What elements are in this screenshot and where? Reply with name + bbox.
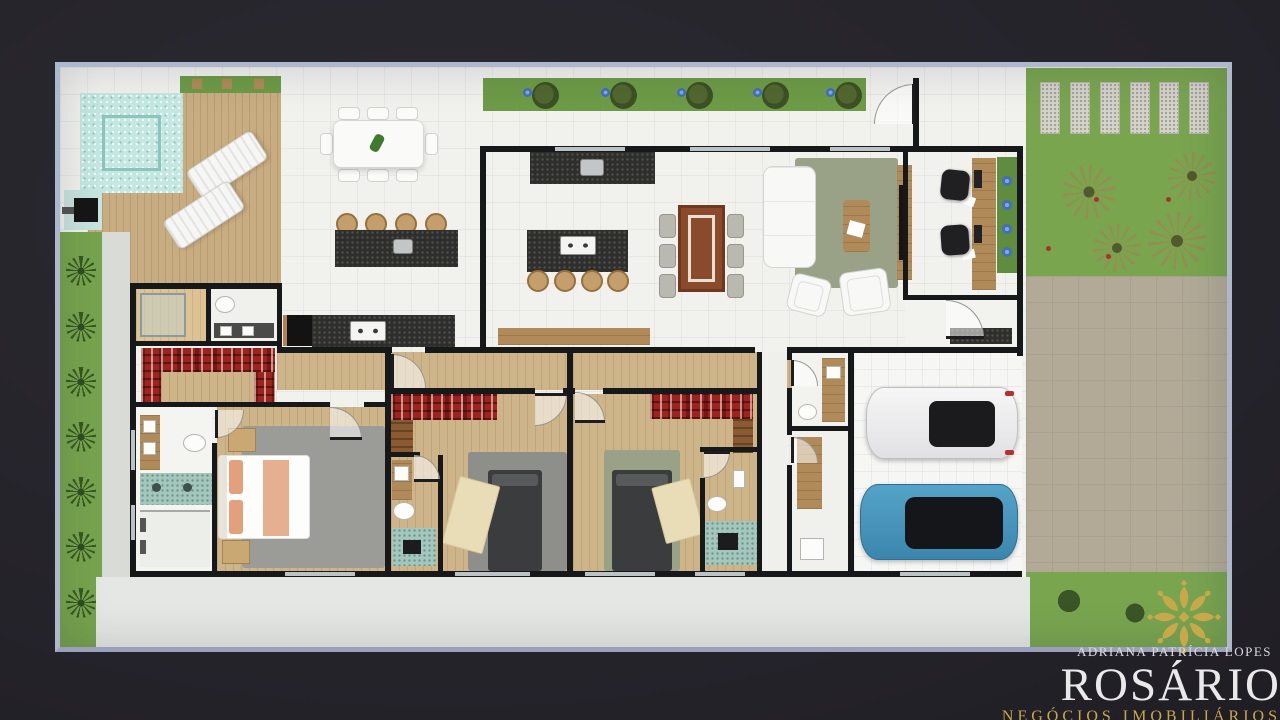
closet-floor (161, 370, 256, 406)
paver (1130, 82, 1150, 134)
paver (1100, 82, 1120, 134)
wall (212, 443, 217, 571)
bath2-door (414, 455, 440, 481)
kitchen-sink (580, 159, 604, 176)
wall (787, 465, 792, 571)
blue-flower (1002, 176, 1012, 186)
driveway (1026, 276, 1227, 572)
sofa (763, 166, 816, 268)
agave-plant (66, 367, 96, 397)
paver (1159, 82, 1179, 134)
wall (567, 352, 573, 571)
red-flower (1094, 197, 1099, 202)
palm-tree (1093, 224, 1141, 272)
wall (385, 388, 535, 394)
blue-flower (1002, 247, 1012, 257)
wall (277, 283, 282, 353)
bath-mat (718, 533, 738, 550)
window (830, 147, 890, 151)
wall (136, 341, 277, 346)
vanity-sink (152, 483, 161, 492)
toilet (215, 296, 235, 313)
red-flower (1046, 246, 1051, 251)
nightstand (222, 540, 250, 564)
wall (364, 402, 385, 407)
dining-chair (338, 169, 360, 182)
pool-inner-edge (102, 115, 161, 171)
brand-name: ROSÁRIO (1002, 662, 1280, 708)
dining-chair-gray (659, 214, 676, 238)
headboard (219, 456, 227, 538)
bed-runner (263, 460, 289, 536)
washing-machine (800, 538, 824, 560)
floor-plan-world (55, 62, 1232, 652)
bath3-door (704, 452, 730, 478)
palm-tree (1062, 165, 1116, 219)
red-flower (1106, 254, 1111, 259)
toilet (707, 496, 727, 512)
wc-door (792, 360, 818, 386)
window (131, 430, 135, 470)
wall (787, 352, 792, 360)
wall (206, 289, 211, 346)
window (131, 505, 135, 540)
bbq-oven (283, 315, 312, 346)
red-flower (1166, 197, 1171, 202)
car-white (866, 387, 1018, 459)
wall (603, 388, 757, 394)
blue-flower (523, 88, 532, 97)
sink-basin (220, 326, 232, 336)
bath3-cabinet (733, 470, 745, 488)
sideboard (498, 328, 650, 345)
dining-chair-gray (727, 214, 744, 238)
sink-basin (394, 466, 409, 481)
sink-basin (826, 366, 841, 379)
planter-pot (222, 79, 232, 89)
blue-flower (1002, 200, 1012, 210)
bush (1056, 588, 1082, 614)
window (585, 572, 655, 576)
dining-chair-gray (659, 274, 676, 298)
window (900, 572, 970, 576)
dining-chair (396, 169, 418, 182)
pillow (616, 474, 668, 486)
bar-sink (393, 239, 413, 254)
bedroom3-wardrobe (650, 394, 753, 419)
planter-pot (192, 79, 202, 89)
dining-chair (320, 133, 333, 155)
toilet (183, 434, 206, 452)
window (555, 147, 625, 151)
vanity-sink (183, 483, 192, 492)
island-stool (607, 270, 629, 292)
closet-wardrobe (254, 372, 275, 404)
shower-handle (140, 540, 146, 554)
wall (787, 426, 848, 431)
window (455, 572, 530, 576)
palm-tree (1148, 212, 1206, 270)
wall (1017, 146, 1023, 356)
brand-tagline: NEGÓCIOS IMOBILIÁRIOS (1002, 708, 1280, 720)
paver (1040, 82, 1060, 134)
dining-chair (425, 133, 438, 155)
hedge-shrub (610, 82, 637, 109)
blue-flower (601, 88, 610, 97)
tail-light (1005, 391, 1014, 396)
scene: ADRIANA PATRÍCIA LOPES ROSÁRIO NEGÓCIOS … (0, 0, 1280, 720)
hedge-shrub (835, 82, 862, 109)
wall (136, 402, 330, 407)
wall (130, 571, 1022, 577)
blue-flower (826, 88, 835, 97)
car-glass (905, 497, 1003, 549)
island-stool (581, 270, 603, 292)
toilet (393, 502, 415, 520)
paver (1189, 82, 1209, 134)
cabinet-basket (143, 420, 156, 433)
blue-flower (753, 88, 762, 97)
dining-chair-gray (727, 244, 744, 268)
swimming-pool (80, 93, 183, 193)
planter-pot (254, 79, 264, 89)
hedge-shrub (532, 82, 559, 109)
brand-block: ADRIANA PATRÍCIA LOPES ROSÁRIO NEGÓCIOS … (1002, 643, 1280, 720)
wall (480, 146, 486, 352)
pillow (229, 460, 243, 494)
agave-plant (66, 532, 96, 562)
sink-basin (242, 326, 254, 336)
cooktop (350, 321, 386, 341)
agave-plant (66, 477, 96, 507)
office-chair (940, 224, 970, 256)
rear-hall-floor (762, 352, 787, 571)
bottom-walkway (96, 577, 1030, 652)
shower-enclosure (140, 293, 186, 337)
master-bed (218, 455, 310, 539)
armchair (838, 267, 892, 317)
paver (1070, 82, 1090, 134)
dining-chair-gray (727, 274, 744, 298)
dining-chair (367, 169, 389, 182)
hedge-shrub (686, 82, 713, 109)
wall (277, 347, 392, 353)
agave-plant (66, 588, 96, 618)
car-blue (860, 484, 1018, 560)
dining-chair (396, 107, 418, 120)
window (285, 572, 355, 576)
office-chair (940, 169, 971, 202)
closet-wardrobe (141, 372, 161, 404)
car-glass (929, 401, 995, 447)
master-vanity-teal (140, 473, 212, 505)
toilet (798, 404, 817, 420)
foyer-door (946, 300, 984, 338)
bedroom2-wardrobe (391, 394, 497, 420)
bedroom2-door (535, 394, 567, 426)
grill-handle (62, 207, 74, 214)
master-bath-door (216, 410, 244, 438)
pillow (492, 474, 538, 486)
window (690, 147, 770, 151)
bath-mat (403, 540, 421, 554)
bush (1124, 602, 1146, 624)
barbecue-grill (74, 198, 98, 222)
master-door (330, 407, 362, 439)
island-stool (554, 270, 576, 292)
tail-light (1005, 450, 1014, 455)
hall-door (392, 354, 426, 388)
monitor (974, 225, 982, 243)
dining-chair (367, 107, 389, 120)
wall (700, 478, 705, 571)
palm-tree (1168, 152, 1216, 200)
wall (848, 352, 854, 571)
bedroom3-door (575, 392, 605, 422)
bedroom2-shelf (391, 420, 413, 456)
wall (757, 352, 762, 571)
island-stool (527, 270, 549, 292)
indoor-dining-table (678, 205, 725, 292)
dining-chair-gray (659, 244, 676, 268)
side-walkway (102, 232, 130, 577)
monitor (974, 170, 982, 188)
floor-plan-render (55, 62, 1232, 652)
wall (425, 347, 755, 353)
cabinet-basket (143, 442, 156, 455)
wall (787, 347, 1023, 353)
laundry-door (792, 437, 818, 463)
agave-plant (66, 312, 96, 342)
agave-plant (66, 422, 96, 452)
dining-chair (338, 107, 360, 120)
master-shower (140, 510, 210, 567)
window (695, 572, 745, 576)
wall (903, 152, 908, 300)
blue-flower (677, 88, 686, 97)
agave-plant (66, 256, 96, 286)
table-inlay (688, 215, 715, 282)
pillow (229, 500, 243, 534)
blue-flower (1002, 224, 1012, 234)
closet-wardrobe (141, 348, 275, 372)
shower-handle (140, 518, 146, 532)
island-cooktop (560, 236, 596, 255)
hedge-shrub (762, 82, 789, 109)
entry-door (874, 84, 914, 124)
